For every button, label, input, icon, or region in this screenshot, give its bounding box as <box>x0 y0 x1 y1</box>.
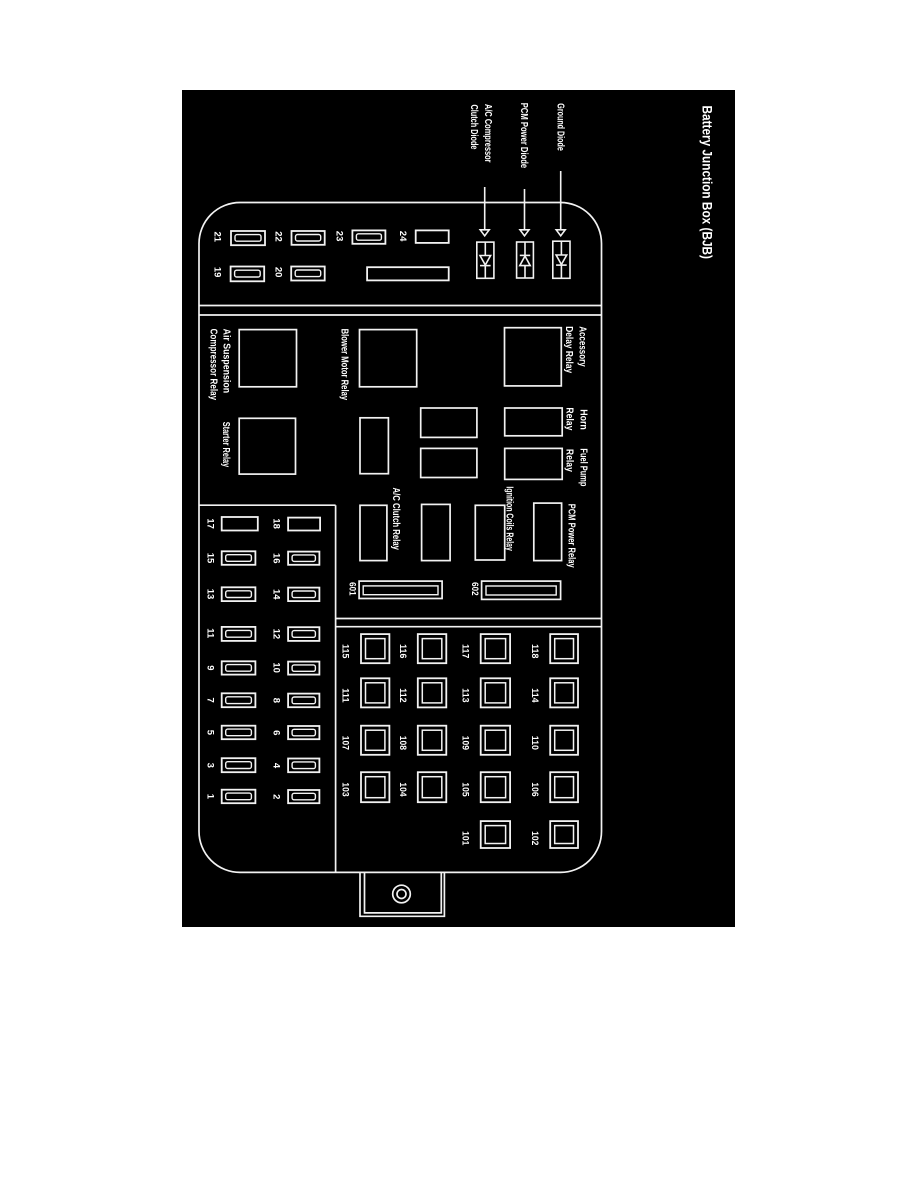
svg-text:602: 602 <box>469 582 480 596</box>
svg-text:110: 110 <box>529 736 540 750</box>
svg-text:10: 10 <box>271 662 282 673</box>
svg-text:111: 111 <box>340 688 351 703</box>
svg-text:12: 12 <box>271 629 282 640</box>
svg-text:7: 7 <box>204 698 215 703</box>
svg-text:23: 23 <box>334 231 345 242</box>
svg-text:18: 18 <box>271 518 282 529</box>
svg-text:14: 14 <box>271 589 282 600</box>
svg-text:24: 24 <box>397 231 408 242</box>
svg-text:Compressor Relay: Compressor Relay <box>207 329 218 401</box>
svg-text:11: 11 <box>204 628 215 639</box>
svg-text:Air Suspension: Air Suspension <box>220 329 231 393</box>
svg-text:101: 101 <box>460 831 471 846</box>
svg-text:102: 102 <box>529 831 540 845</box>
svg-text:106: 106 <box>529 782 540 796</box>
svg-text:9: 9 <box>204 665 215 670</box>
svg-text:118: 118 <box>529 644 540 658</box>
svg-text:Ignition Coils Relay: Ignition Coils Relay <box>504 486 515 551</box>
svg-text:8: 8 <box>271 698 282 703</box>
svg-text:103: 103 <box>340 782 351 796</box>
svg-text:115: 115 <box>340 644 351 659</box>
svg-text:PCM Power Diode: PCM Power Diode <box>518 103 529 169</box>
svg-text:A/C Compressor: A/C Compressor <box>482 104 493 163</box>
svg-text:Fuel Pump: Fuel Pump <box>578 448 589 486</box>
svg-text:5: 5 <box>204 730 215 736</box>
svg-text:113: 113 <box>460 688 471 702</box>
svg-text:PCM Power Relay: PCM Power Relay <box>565 504 576 568</box>
svg-text:Blower Motor Relay: Blower Motor Relay <box>339 329 350 401</box>
svg-text:3: 3 <box>204 763 215 768</box>
svg-text:114: 114 <box>529 688 540 703</box>
svg-text:Ground Diode: Ground Diode <box>555 103 566 151</box>
svg-text:17: 17 <box>204 518 215 529</box>
svg-text:16: 16 <box>271 553 282 564</box>
svg-text:15: 15 <box>204 553 215 564</box>
svg-text:4: 4 <box>271 763 282 769</box>
svg-text:Clutch Diode: Clutch Diode <box>468 105 479 150</box>
svg-text:107: 107 <box>340 736 351 750</box>
svg-text:108: 108 <box>397 736 408 750</box>
svg-text:Starter Relay: Starter Relay <box>220 422 231 468</box>
svg-text:Relay: Relay <box>564 449 575 472</box>
svg-text:601: 601 <box>347 582 358 596</box>
svg-text:2: 2 <box>271 794 282 799</box>
svg-text:19: 19 <box>212 267 223 278</box>
svg-text:109: 109 <box>460 736 471 750</box>
svg-text:1: 1 <box>204 794 215 800</box>
svg-text:Horn: Horn <box>578 409 589 430</box>
svg-text:112: 112 <box>397 688 408 702</box>
svg-text:Accessory: Accessory <box>577 326 588 367</box>
svg-text:Delay Relay: Delay Relay <box>563 326 574 373</box>
svg-text:20: 20 <box>273 267 284 278</box>
svg-text:104: 104 <box>397 782 408 797</box>
svg-text:13: 13 <box>204 589 215 600</box>
svg-text:6: 6 <box>271 730 282 735</box>
svg-text:117: 117 <box>460 644 471 658</box>
svg-text:A/C Clutch Relay: A/C Clutch Relay <box>390 488 401 551</box>
svg-text:22: 22 <box>273 231 284 242</box>
svg-text:116: 116 <box>397 644 408 658</box>
svg-text:Battery Junction Box (BJB): Battery Junction Box (BJB) <box>700 106 715 260</box>
svg-text:105: 105 <box>460 782 471 797</box>
svg-text:Relay: Relay <box>564 407 575 430</box>
svg-text:21: 21 <box>212 232 223 243</box>
